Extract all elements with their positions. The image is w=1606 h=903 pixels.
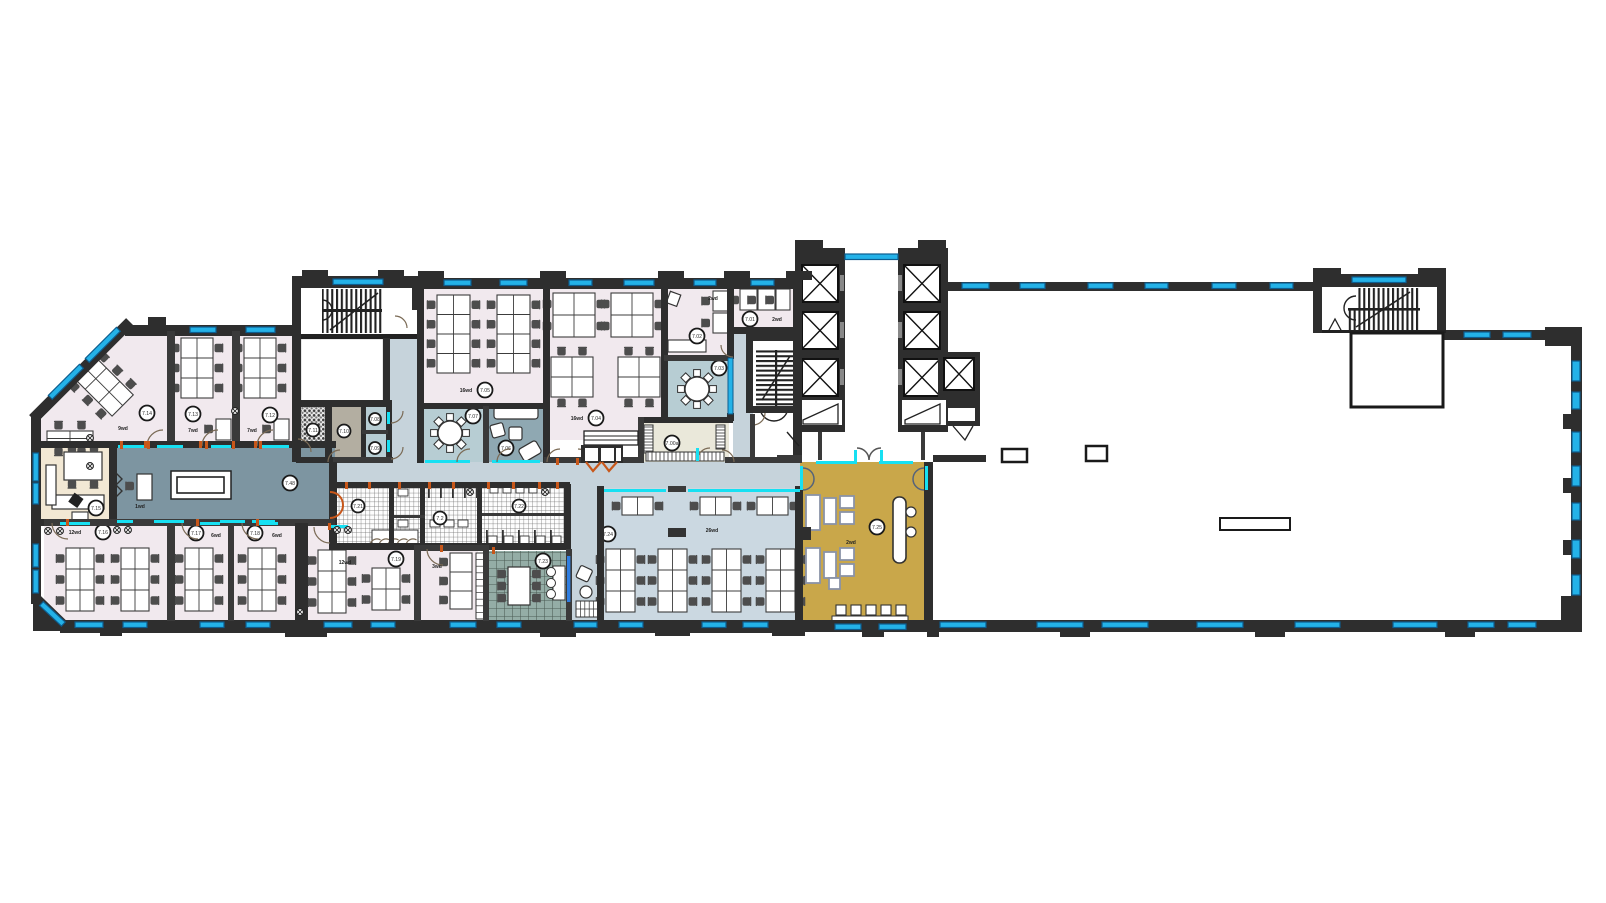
svg-text:7wd: 7wd [188, 428, 198, 434]
svg-text:6wd: 6wd [211, 533, 221, 539]
svg-text:1wd: 1wd [135, 504, 145, 510]
svg-text:16wd: 16wd [460, 388, 473, 394]
svg-text:7.15: 7.15 [91, 506, 101, 512]
svg-text:7.02: 7.02 [692, 334, 702, 340]
svg-text:7.04: 7.04 [591, 416, 601, 422]
svg-text:7.13: 7.13 [188, 412, 198, 418]
svg-text:2wd: 2wd [708, 296, 718, 302]
svg-text:7.21: 7.21 [353, 504, 363, 510]
svg-text:7.48: 7.48 [285, 481, 295, 487]
svg-text:7.14: 7.14 [142, 411, 152, 417]
svg-text:7wd: 7wd [247, 428, 257, 434]
svg-text:7.00a: 7.00a [666, 441, 679, 447]
svg-text:7.25: 7.25 [872, 525, 882, 531]
svg-text:7.01: 7.01 [745, 317, 755, 323]
svg-text:7.12: 7.12 [265, 413, 275, 419]
svg-text:7.22: 7.22 [514, 504, 524, 510]
svg-text:7.23: 7.23 [538, 559, 548, 565]
svg-text:7.19: 7.19 [391, 557, 401, 563]
svg-text:7.08: 7.08 [370, 417, 380, 423]
svg-text:7.10: 7.10 [339, 429, 349, 435]
svg-text:7.09: 7.09 [370, 446, 380, 452]
svg-text:6wd: 6wd [272, 533, 282, 539]
svg-text:9wd: 9wd [118, 426, 128, 432]
svg-text:7.03: 7.03 [714, 366, 724, 372]
svg-text:12wd: 12wd [69, 530, 82, 536]
svg-text:7.24: 7.24 [603, 532, 613, 538]
svg-text:7.07: 7.07 [468, 414, 478, 420]
svg-text:7.2: 7.2 [436, 516, 443, 522]
svg-text:7.05: 7.05 [480, 388, 490, 394]
svg-text:2wd: 2wd [772, 317, 782, 323]
svg-text:26wd: 26wd [706, 528, 719, 534]
svg-text:7.11: 7.11 [308, 428, 318, 434]
svg-text:7.16: 7.16 [98, 530, 108, 536]
svg-text:16wd: 16wd [571, 416, 584, 422]
svg-text:2wd: 2wd [846, 540, 856, 546]
svg-text:7.17: 7.17 [191, 531, 201, 537]
svg-text:7.18: 7.18 [250, 531, 260, 537]
svg-text:12wd: 12wd [339, 560, 352, 566]
